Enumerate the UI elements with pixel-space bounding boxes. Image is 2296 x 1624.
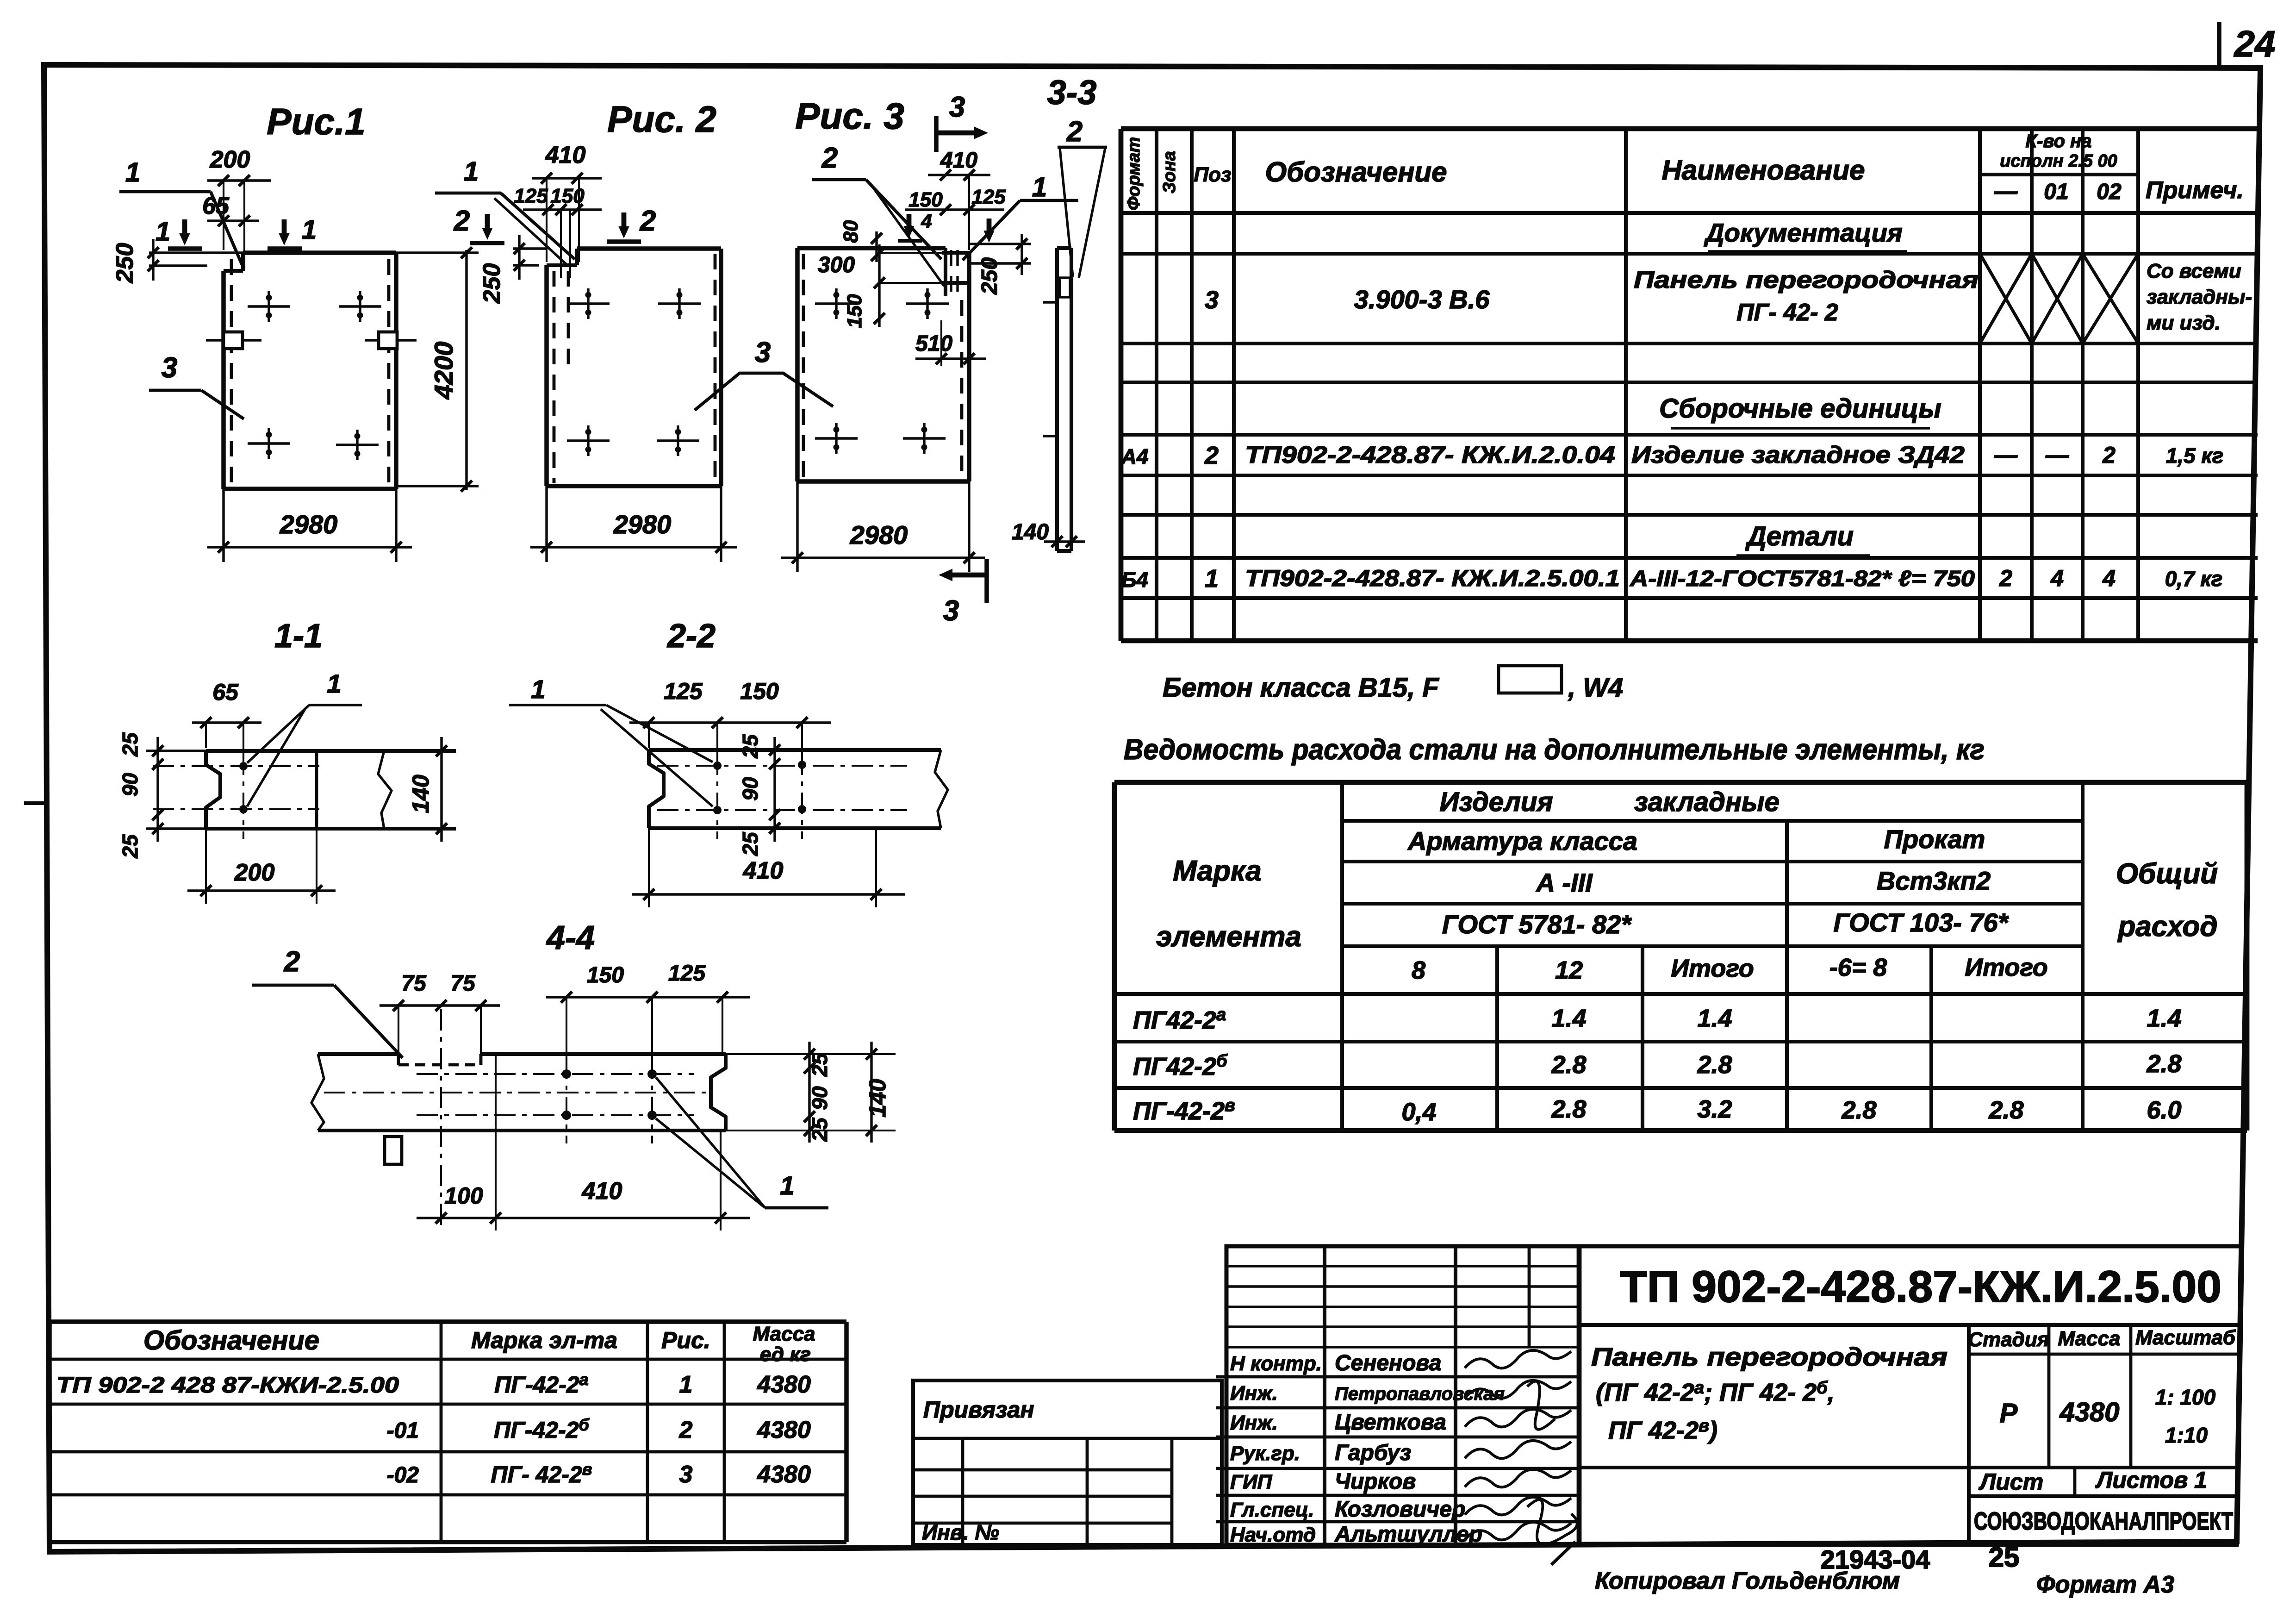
svg-text:140: 140 xyxy=(1012,520,1049,544)
svg-text:24: 24 xyxy=(2234,23,2276,64)
svg-text:1.4: 1.4 xyxy=(2147,1005,2181,1032)
svg-text:125: 125 xyxy=(668,961,706,986)
svg-text:250: 250 xyxy=(479,263,505,304)
svg-text:140: 140 xyxy=(865,1079,890,1118)
svg-text:Итого: Итого xyxy=(1671,955,1754,982)
svg-text:1: 1 xyxy=(156,217,170,247)
svg-text:Чирков: Чирков xyxy=(1335,1469,1416,1494)
svg-text:250: 250 xyxy=(112,243,138,284)
svg-text:1:10: 1:10 xyxy=(2165,1423,2208,1447)
svg-text:1: 1 xyxy=(125,157,140,187)
svg-text:1: 1 xyxy=(679,1371,693,1398)
svg-text:3: 3 xyxy=(679,1461,693,1488)
svg-text:125: 125 xyxy=(664,678,703,704)
svg-text:Масштаб: Масштаб xyxy=(2135,1326,2236,1349)
svg-text:410: 410 xyxy=(545,142,586,169)
svg-text:3: 3 xyxy=(755,337,771,369)
svg-text:А -III: А -III xyxy=(1535,868,1593,897)
svg-text:Инж.: Инж. xyxy=(1230,1412,1278,1434)
svg-text:ПГ- 42- 2: ПГ- 42- 2 xyxy=(1736,299,1838,326)
svg-text:—: — xyxy=(1994,442,2018,468)
svg-text:150: 150 xyxy=(587,963,624,987)
svg-text:Зона: Зона xyxy=(1160,151,1179,194)
svg-text:А4: А4 xyxy=(1121,444,1149,468)
svg-text:2: 2 xyxy=(1999,565,2012,591)
svg-text:Привязан: Привязан xyxy=(923,1397,1034,1423)
svg-text:3: 3 xyxy=(162,352,177,384)
svg-text:Рук.гр.: Рук.гр. xyxy=(1230,1442,1300,1465)
svg-text:элемента: элемента xyxy=(1156,921,1301,953)
svg-text:Марка эл-та: Марка эл-та xyxy=(471,1327,617,1353)
svg-text:3: 3 xyxy=(949,91,965,123)
svg-text:ТП902-2-428.87- КЖ.И.2.5.00.1: ТП902-2-428.87- КЖ.И.2.5.00.1 xyxy=(1245,565,1620,591)
svg-text:90: 90 xyxy=(738,777,762,801)
svg-text:2.8: 2.8 xyxy=(1551,1051,1586,1079)
svg-text:Обозначение: Обозначение xyxy=(143,1325,319,1355)
svg-text:150: 150 xyxy=(908,188,943,211)
svg-text:Рис.: Рис. xyxy=(661,1327,710,1353)
svg-text:К-во на: К-во на xyxy=(2025,131,2091,151)
svg-text:Итого: Итого xyxy=(1965,954,2048,981)
svg-text:4380: 4380 xyxy=(757,1461,811,1488)
svg-text:ПГ42-2а: ПГ42-2а xyxy=(1133,1005,1226,1034)
svg-text:-01: -01 xyxy=(387,1418,419,1443)
svg-text:Листов 1: Листов 1 xyxy=(2095,1467,2207,1493)
svg-text:—: — xyxy=(1994,178,2018,204)
svg-text:ПГ42-2б: ПГ42-2б xyxy=(1133,1051,1228,1081)
svg-text:-02: -02 xyxy=(387,1463,419,1487)
svg-text:3.2: 3.2 xyxy=(1697,1095,1732,1123)
svg-text:Формат: Формат xyxy=(1124,137,1144,211)
svg-text:Лист: Лист xyxy=(1979,1469,2043,1495)
svg-text:ГОСТ 5781- 82*: ГОСТ 5781- 82* xyxy=(1442,910,1632,939)
svg-text:Панель перегородочная: Панель перегородочная xyxy=(1591,1342,1948,1371)
svg-text:4: 4 xyxy=(921,210,932,232)
svg-text:4: 4 xyxy=(2102,565,2116,591)
svg-text:90: 90 xyxy=(118,773,142,797)
svg-text:1: 1 xyxy=(531,675,545,704)
svg-text:-6= 8: -6= 8 xyxy=(1829,954,1887,981)
svg-text:Со всеми: Со всеми xyxy=(2147,260,2241,282)
svg-text:150: 150 xyxy=(550,185,585,207)
svg-text:расход: расход xyxy=(2117,911,2217,943)
svg-text:закладные: закладные xyxy=(1634,787,1780,817)
svg-text:Нач.отд: Нач.отд xyxy=(1230,1524,1316,1546)
svg-text:1-1: 1-1 xyxy=(274,618,323,655)
svg-text:2: 2 xyxy=(2102,442,2116,468)
svg-text:1: 100: 1: 100 xyxy=(2155,1385,2216,1409)
svg-text:2.8: 2.8 xyxy=(1988,1096,2023,1124)
svg-text:75: 75 xyxy=(450,971,476,996)
svg-text:1: 1 xyxy=(780,1171,794,1200)
svg-text:Рис. 3: Рис. 3 xyxy=(795,95,904,137)
svg-text:300: 300 xyxy=(818,253,855,277)
svg-text:90: 90 xyxy=(808,1086,832,1110)
svg-text:(ПГ 42-2а; ПГ 42- 2б,: (ПГ 42-2а; ПГ 42- 2б, xyxy=(1596,1378,1835,1406)
svg-text:Р: Р xyxy=(2000,1398,2018,1428)
svg-text:4380: 4380 xyxy=(757,1417,811,1443)
svg-text:6.0: 6.0 xyxy=(2147,1096,2181,1124)
svg-text:4-4: 4-4 xyxy=(546,919,595,956)
svg-text:ТП 902-2-428.87-КЖ.И.2.5.00: ТП 902-2-428.87-КЖ.И.2.5.00 xyxy=(1620,1262,2221,1312)
svg-text:1: 1 xyxy=(1032,172,1047,202)
svg-text:65: 65 xyxy=(202,193,230,219)
svg-text:ГИП: ГИП xyxy=(1230,1471,1273,1493)
svg-text:Сборочные единицы: Сборочные единицы xyxy=(1659,394,1941,424)
svg-text:Н контр.: Н контр. xyxy=(1230,1352,1322,1375)
svg-text:Прокат: Прокат xyxy=(1884,824,1985,854)
svg-text:Козловичер: Козловичер xyxy=(1335,1497,1465,1522)
svg-text:2: 2 xyxy=(1066,116,1083,148)
svg-text:75: 75 xyxy=(401,971,427,996)
svg-text:СОЮЗВОДОКАНАЛПРОЕКТ: СОЮЗВОДОКАНАЛПРОЕКТ xyxy=(1974,1507,2233,1535)
svg-text:3: 3 xyxy=(943,595,959,627)
svg-text:Гл.спец.: Гл.спец. xyxy=(1230,1499,1314,1521)
svg-text:2: 2 xyxy=(821,142,838,174)
svg-text:12: 12 xyxy=(1555,956,1583,984)
svg-text:25: 25 xyxy=(118,732,142,757)
svg-text:Панель перегородочная: Панель перегородочная xyxy=(1634,267,1979,294)
svg-text:150: 150 xyxy=(843,294,866,328)
svg-text:1: 1 xyxy=(1205,565,1219,593)
svg-text:Наименование: Наименование xyxy=(1661,155,1865,186)
svg-text:25: 25 xyxy=(118,834,142,859)
svg-text:2980: 2980 xyxy=(613,510,672,539)
svg-text:Б4: Б4 xyxy=(1121,568,1148,592)
svg-text:Общий: Общий xyxy=(2116,858,2218,890)
svg-text:Инж.: Инж. xyxy=(1230,1382,1278,1405)
svg-text:0,4: 0,4 xyxy=(1401,1098,1436,1126)
svg-text:2: 2 xyxy=(1204,442,1219,469)
svg-text:2980: 2980 xyxy=(280,510,338,539)
svg-text:Арматура класса: Арматура класса xyxy=(1407,826,1637,856)
svg-text:Ведомость расхода стали на: Ведомость расхода стали на дополнительны… xyxy=(1124,734,1985,766)
svg-text:Марка: Марка xyxy=(1173,855,1261,887)
svg-text:2.8: 2.8 xyxy=(1841,1096,1876,1124)
svg-text:Формат А3: Формат А3 xyxy=(2036,1571,2174,1598)
svg-text:ПГ-42-2а: ПГ-42-2а xyxy=(494,1370,588,1398)
svg-text:1,5 кг: 1,5 кг xyxy=(2166,443,2224,468)
svg-text:65: 65 xyxy=(212,679,239,705)
svg-text:ТП 902-2 428 87-КЖИ-2.5.00: ТП 902-2 428 87-КЖИ-2.5.00 xyxy=(56,1373,399,1398)
svg-text:Петропавловская: Петропавловская xyxy=(1335,1384,1505,1404)
svg-text:—: — xyxy=(2045,442,2069,468)
svg-text:1: 1 xyxy=(302,215,317,245)
svg-text:8: 8 xyxy=(1412,956,1425,984)
svg-text:410: 410 xyxy=(940,148,977,173)
svg-text:Цветкова: Цветкова xyxy=(1335,1410,1446,1435)
svg-text:Инв. №: Инв. № xyxy=(922,1520,999,1544)
svg-text:Масса: Масса xyxy=(753,1323,815,1345)
svg-text:25: 25 xyxy=(738,734,762,759)
svg-text:140: 140 xyxy=(408,775,434,813)
svg-text:Рис.1: Рис.1 xyxy=(267,101,365,142)
svg-text:ед кг: ед кг xyxy=(760,1343,811,1366)
svg-text:ПГ- 42-2в: ПГ- 42-2в xyxy=(491,1460,592,1487)
svg-text:Поз: Поз xyxy=(1194,163,1232,186)
svg-text:2-2: 2-2 xyxy=(666,618,716,655)
svg-text:1.4: 1.4 xyxy=(1551,1005,1586,1032)
svg-text:01: 01 xyxy=(2044,180,2068,204)
svg-text:4: 4 xyxy=(2050,565,2064,591)
svg-text:Масса: Масса xyxy=(2058,1327,2120,1350)
svg-text:4380: 4380 xyxy=(2059,1397,2119,1427)
svg-text:3-3: 3-3 xyxy=(1047,73,1097,112)
svg-text:1: 1 xyxy=(327,669,341,698)
svg-text:0,7 кг: 0,7 кг xyxy=(2165,567,2223,591)
svg-text:125: 125 xyxy=(514,185,548,207)
svg-text:Детали: Детали xyxy=(1745,521,1854,551)
svg-text:ПГ-42-2б: ПГ-42-2б xyxy=(494,1415,590,1443)
svg-text:80: 80 xyxy=(840,220,862,243)
svg-text:25: 25 xyxy=(738,831,762,856)
svg-text:150: 150 xyxy=(740,678,779,704)
svg-text:02: 02 xyxy=(2097,180,2122,204)
svg-text:Документация: Документация xyxy=(1704,218,1903,247)
svg-text:2980: 2980 xyxy=(850,520,908,550)
svg-text:закладны-: закладны- xyxy=(2147,286,2252,308)
svg-text:2: 2 xyxy=(640,205,656,237)
svg-text:200: 200 xyxy=(234,859,275,886)
svg-text:1: 1 xyxy=(464,156,479,187)
svg-text:510: 510 xyxy=(915,331,952,356)
svg-text:Обозначение: Обозначение xyxy=(1265,156,1447,187)
svg-text:3: 3 xyxy=(1205,286,1219,314)
svg-text:125: 125 xyxy=(971,186,1006,208)
svg-text:Бетон класса В15, F: Бетон класса В15, F xyxy=(1163,673,1439,703)
svg-text:410: 410 xyxy=(743,857,784,884)
svg-text:Гарбуз: Гарбуз xyxy=(1335,1441,1411,1465)
svg-text:ТП902-2-428.87- КЖ.И.2.0.04: ТП902-2-428.87- КЖ.И.2.0.04 xyxy=(1245,442,1615,468)
svg-text:2: 2 xyxy=(454,205,470,237)
svg-text:100: 100 xyxy=(444,1183,483,1209)
svg-text:2: 2 xyxy=(284,946,300,978)
svg-text:3.900-3 В.6: 3.900-3 В.6 xyxy=(1354,285,1490,314)
svg-text:Копировал Гольденблюм: Копировал Гольденблюм xyxy=(1595,1568,1900,1594)
svg-text:2: 2 xyxy=(679,1417,693,1443)
svg-text:Изделие закладное ЗД42: Изделие закладное ЗД42 xyxy=(1631,442,1965,468)
svg-text:Стадия: Стадия xyxy=(1968,1328,2049,1351)
svg-text:Альтшуллер: Альтшуллер xyxy=(1334,1522,1482,1547)
svg-text:2.8: 2.8 xyxy=(1551,1095,1586,1123)
svg-text:, W4: , W4 xyxy=(1568,673,1623,703)
svg-text:Сененова: Сененова xyxy=(1335,1351,1441,1375)
svg-text:ГОСТ 103- 76*: ГОСТ 103- 76* xyxy=(1834,908,2009,937)
svg-text:Примеч.: Примеч. xyxy=(2146,177,2244,204)
svg-text:ми изд.: ми изд. xyxy=(2147,312,2221,334)
svg-text:Изделия: Изделия xyxy=(1439,787,1553,817)
svg-text:А-III-12-ГОСТ5781-82* ℓ= 750: А-III-12-ГОСТ5781-82* ℓ= 750 xyxy=(1630,567,1975,591)
svg-text:4200: 4200 xyxy=(429,342,458,400)
svg-text:200: 200 xyxy=(210,146,250,173)
svg-text:Рис. 2: Рис. 2 xyxy=(607,99,716,140)
svg-text:Вст3кп2: Вст3кп2 xyxy=(1877,866,1991,895)
svg-text:2.8: 2.8 xyxy=(2146,1050,2181,1078)
svg-text:25: 25 xyxy=(1989,1542,2020,1573)
svg-text:исполн 2.5 00: исполн 2.5 00 xyxy=(2000,151,2117,171)
svg-text:4380: 4380 xyxy=(757,1371,811,1398)
svg-text:2.8: 2.8 xyxy=(1697,1051,1732,1079)
svg-text:410: 410 xyxy=(582,1178,622,1205)
svg-text:ПГ-42-2в: ПГ-42-2в xyxy=(1133,1096,1235,1125)
svg-text:1.4: 1.4 xyxy=(1697,1005,1732,1032)
